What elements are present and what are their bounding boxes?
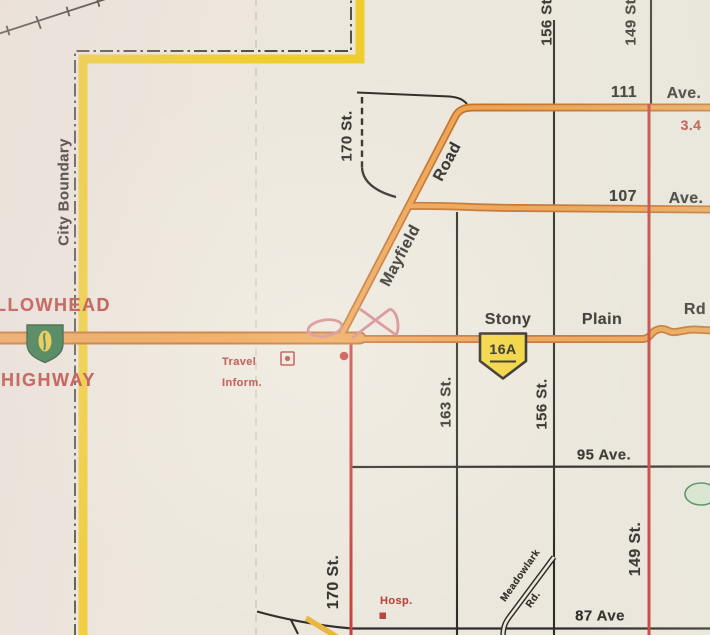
stony-label: Stony (485, 312, 531, 328)
railway-line (0, 0, 112, 35)
st149-top-label: 149 St. (624, 0, 639, 46)
map-canvas: City Boundary YELLOWHEAD HIGHWAY 170 St.… (0, 0, 710, 635)
highway-label: HIGHWAY (1, 371, 96, 389)
distance-annotation: 3.4 (681, 118, 702, 132)
hospital-icon (380, 613, 387, 620)
travel-info-label-2: Inform. (222, 378, 262, 389)
park-oval (685, 483, 710, 505)
ave111-west-line (357, 93, 467, 105)
ave107-number-label: 107 (609, 189, 637, 205)
ave87-line (257, 612, 710, 629)
st156-top-label: 156 St. (540, 0, 555, 46)
ave111-number-label: 111 (611, 85, 637, 101)
travel-info-icon (281, 352, 294, 365)
rd-label: Rd (684, 302, 706, 318)
hospital-label: Hosp. (380, 596, 413, 607)
red-dot-marker (340, 352, 349, 361)
travel-info-label-1: Travel (222, 357, 256, 368)
st163-label: 163 St. (439, 376, 454, 427)
ave95-line (352, 467, 710, 468)
city-boundary-label: City Boundary (57, 138, 72, 246)
city-boundary-yellow-band (83, 0, 360, 635)
st156-mid-label: 156 St. (535, 378, 550, 429)
ave95-label: 95 Ave. (577, 448, 631, 463)
st170-connector-curve (362, 168, 396, 197)
plain-label: Plain (582, 312, 622, 328)
yellowhead-label: YELLOWHEAD (0, 296, 111, 314)
highway16-shield-icon (27, 325, 63, 363)
ave111-suffix-label: Ave. (667, 86, 702, 102)
shield16a-label: 16A (489, 342, 516, 356)
st170-top-label: 170 St. (340, 110, 355, 161)
city-boundary-dashdot (75, 0, 351, 635)
ave107-suffix-label: Ave. (669, 191, 704, 207)
ave87-label: 87 Ave (575, 609, 625, 624)
st170-bottom-label: 170 St. (326, 555, 342, 609)
st149-bottom-label: 149 St. (628, 522, 644, 576)
